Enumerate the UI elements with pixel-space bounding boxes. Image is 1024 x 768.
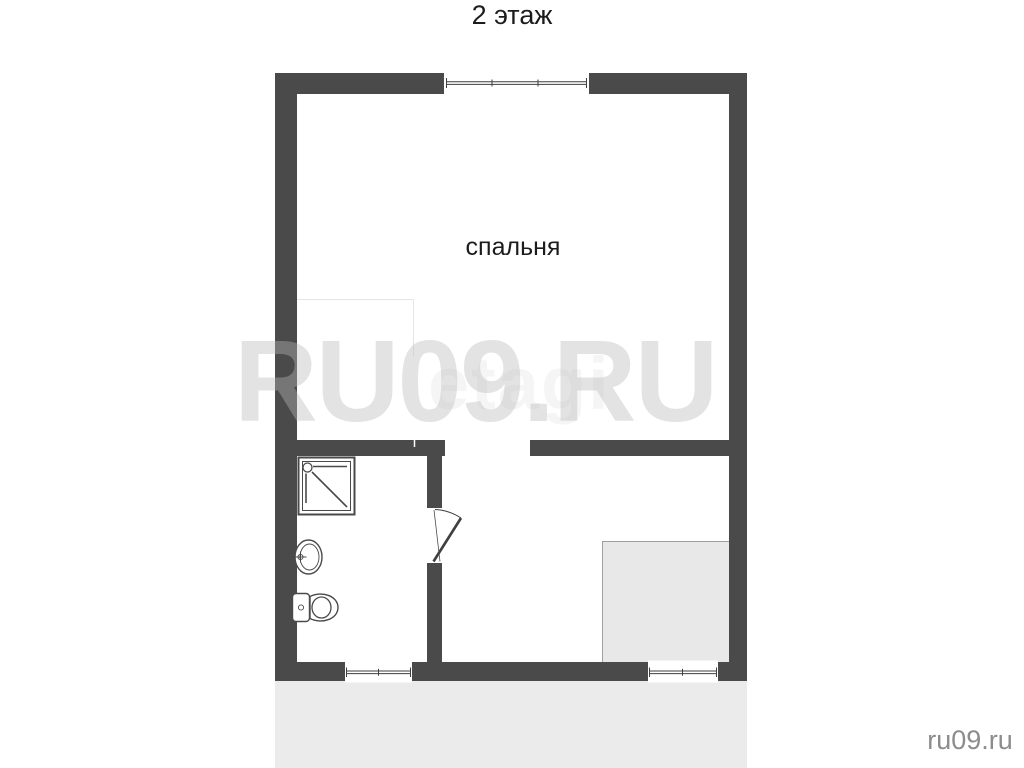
bedroom-label: спальня <box>297 233 729 262</box>
stair-landing-block <box>603 542 733 664</box>
wall-interior-vertical-upper <box>427 440 442 508</box>
door-swing-symbol <box>434 510 462 562</box>
window-top-symbol <box>444 72 589 96</box>
wall-interior-vertical-lower <box>427 563 442 662</box>
toilet-symbol <box>293 594 339 622</box>
floor-plan-page: etagi RU09.RU 2 этаж спальня ru09.ru <box>0 0 1024 768</box>
window-bottom-right-symbol <box>648 661 718 683</box>
floor-title: 2 этаж <box>0 0 1024 31</box>
lower-area-fill <box>275 681 747 768</box>
sink-symbol <box>295 540 322 574</box>
site-corner-label: ru09.ru <box>920 725 1020 756</box>
shower-symbol <box>299 458 355 515</box>
window-bottom-left-symbol <box>345 661 412 683</box>
ru09-watermark: RU09.RU <box>234 331 834 431</box>
